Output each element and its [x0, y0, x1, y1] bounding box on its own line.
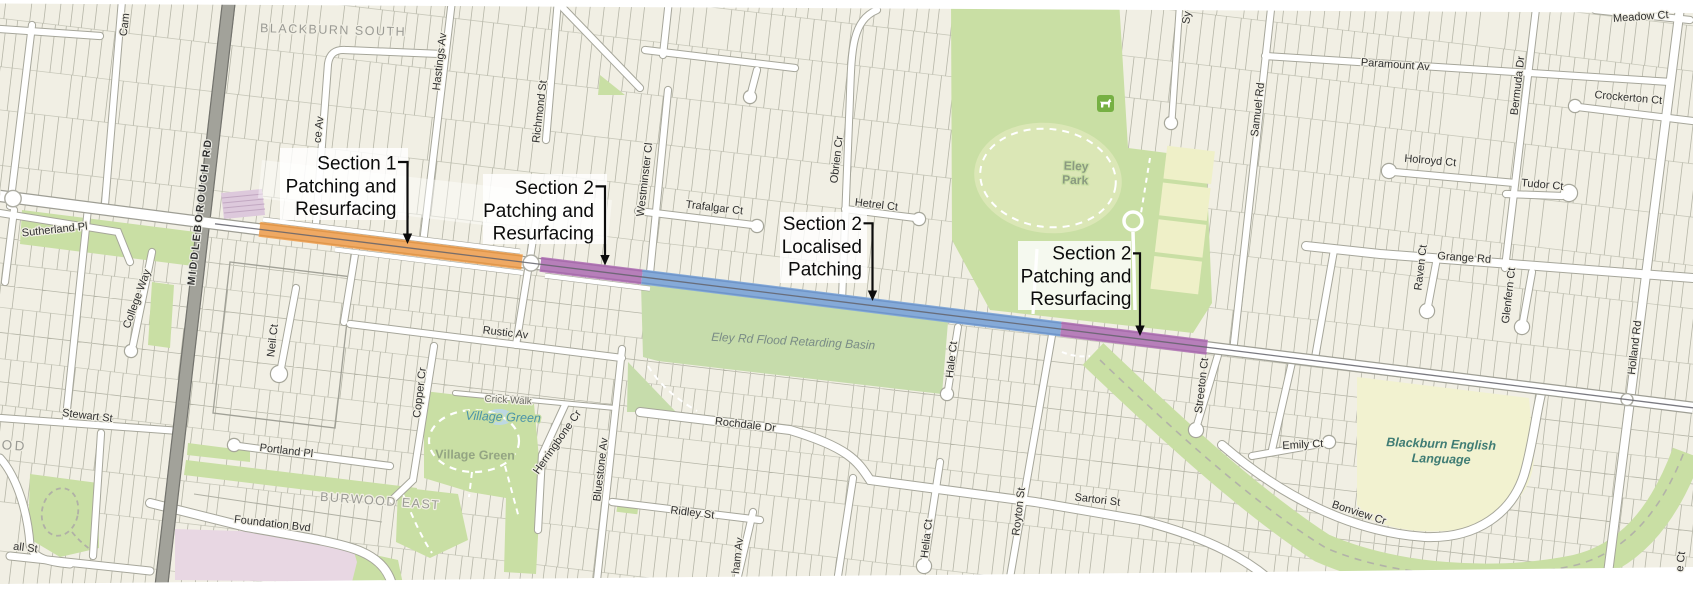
svg-text:Sy: Sy: [1180, 10, 1193, 25]
svg-text:Section 2: Section 2: [515, 178, 594, 199]
svg-text:Park: Park: [1062, 173, 1089, 188]
svg-text:Resurfacing: Resurfacing: [295, 199, 396, 220]
svg-text:Patching: Patching: [788, 260, 862, 281]
svg-text:Localised: Localised: [782, 237, 862, 258]
svg-text:Village Green: Village Green: [435, 447, 515, 462]
svg-text:Language: Language: [1411, 451, 1471, 467]
svg-text:Resurfacing: Resurfacing: [493, 224, 594, 245]
svg-text:Village Green: Village Green: [465, 409, 541, 426]
svg-text:Emily Ct: Emily Ct: [1282, 438, 1324, 452]
svg-text:Section 2: Section 2: [783, 214, 862, 235]
svg-text:Resurfacing: Resurfacing: [1030, 289, 1131, 310]
svg-text:Section 1: Section 1: [317, 154, 396, 175]
svg-text:Patching and: Patching and: [1021, 266, 1132, 287]
svg-text:Eley: Eley: [1064, 159, 1089, 174]
svg-text:Patching and: Patching and: [286, 176, 397, 197]
svg-text:e Ct: e Ct: [1674, 551, 1688, 572]
svg-text:Section 2: Section 2: [1052, 244, 1131, 265]
svg-text:Patching and: Patching and: [483, 201, 594, 222]
svg-text:OD: OD: [1, 437, 27, 454]
